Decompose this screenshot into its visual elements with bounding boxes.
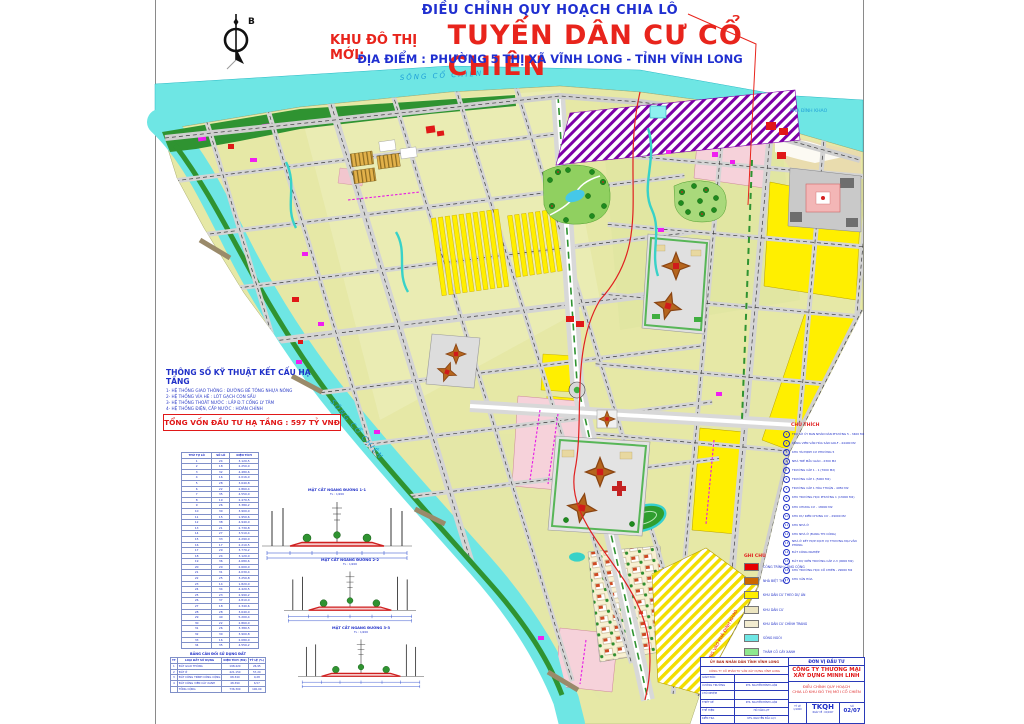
signature-row: THIẾT KẾ KTS. NGUYỄN ĐÌNH LUẬN bbox=[701, 700, 788, 708]
legend-item-number: 9 bbox=[783, 504, 790, 511]
legend-item-label: TRỤ SỞ ỦY BAN NHÂN DÂN PHƯỜNG 5 - 3400 M… bbox=[792, 433, 864, 436]
legend-item-number: 6 bbox=[783, 476, 790, 483]
sheet-cell: SỐ 02/07 bbox=[840, 703, 864, 723]
legend-item-label: KHU NHÀ Ở (ĐANG THI CÔNG) bbox=[792, 533, 836, 536]
legend-item-number: 11 bbox=[783, 522, 790, 529]
legend-item-label: TRƯỜNG CẤP 1 HÒA THUẬN - 4950 M2 bbox=[792, 487, 849, 490]
legend-item-label: KHU DÂN CƯ bbox=[763, 608, 784, 612]
legend-item: 3 KHU TÁI ĐỊNH CƯ PHƯỜNG 5 bbox=[783, 449, 865, 456]
legend-color-swatch bbox=[744, 577, 759, 585]
investor-name: CÔNG TY THƯƠNG MẠI XÂY DỰNG MINH LINH bbox=[789, 666, 864, 682]
legend-item: 8 KHU TRƯỜNG HỌC PHƯỜNG 1 (13000 M2) bbox=[783, 495, 865, 502]
road-cross-sections bbox=[0, 0, 1024, 724]
legend-color-swatch bbox=[744, 648, 759, 656]
legend-color-swatch bbox=[744, 634, 759, 642]
legend-item-label: KHU TRƯỜNG HỌC PHƯỜNG 1 (13000 M2) bbox=[792, 496, 855, 499]
legend-item: THẢM CỎ CÂY XANH bbox=[744, 648, 830, 656]
legend-item-label: KHU DỰ KIẾN CHUNG CƯ - 29000 M2 bbox=[792, 515, 846, 518]
legend-item: KHU DÂN CƯ bbox=[744, 606, 830, 614]
scale-cell: TỶ LỆ 1/1000 bbox=[789, 703, 807, 723]
legend-item: 7 TRƯỜNG CẤP 1 HÒA THUẬN - 4950 M2 bbox=[783, 486, 865, 493]
legend-item-label: SÔNG NGÒI bbox=[763, 636, 782, 640]
investor-label: ĐƠN VỊ ĐẦU TƯ bbox=[789, 658, 864, 666]
legend-item: 2 CÔNG VIÊN VĂN HÓA SÂN GOLF - 44400 M2 bbox=[783, 440, 865, 447]
legend-item-label: KHU CHUNG CƯ - 18000 M2 bbox=[792, 506, 833, 509]
title-block: ỦY BAN NHÂN DÂN TỈNH VĨNH LONG CÔNG TY C… bbox=[700, 657, 865, 724]
consultant-name: CÔNG TY CỔ PHẦN TƯ VẤN XÂY DỰNG VĨNH LON… bbox=[701, 667, 788, 675]
legend-item-label: THẢM CỎ CÂY XANH bbox=[763, 650, 795, 654]
legend-item: 4 NHÀ TRẺ MẪU GIÁO - 2300 M2 bbox=[783, 458, 865, 465]
plan-sheet: SÔNG CỔ CHIÊN SÔNG CỔ CHIÊN PHÀ ĐÌNH KHA… bbox=[0, 0, 1024, 724]
legend-item-number: 1 bbox=[783, 431, 790, 438]
legend-item-number: 12 bbox=[783, 531, 790, 538]
legend-item: 9 KHU CHUNG CƯ - 18000 M2 bbox=[783, 504, 865, 511]
legend-item-number: 13 bbox=[783, 540, 790, 547]
legend-item-number: 4 bbox=[783, 458, 790, 465]
legend-item-number: 7 bbox=[783, 486, 790, 493]
legend-item-label: TRƯỜNG CẤP 1 - 1 (7000 M2) bbox=[792, 469, 835, 472]
signature-row: CHỦ NHIỆM bbox=[701, 691, 788, 699]
legend-item: 1 TRỤ SỞ ỦY BAN NHÂN DÂN PHƯỜNG 5 - 3400… bbox=[783, 431, 865, 438]
title-block-right: ĐƠN VỊ ĐẦU TƯ CÔNG TY THƯƠNG MẠI XÂY DỰN… bbox=[789, 658, 864, 723]
legend-item: 11 KHU NHÀ Ở bbox=[783, 522, 865, 529]
legend-item: 6 TRƯỜNG CẤP 1 (5000 M2) bbox=[783, 476, 865, 483]
title-block-left: ỦY BAN NHÂN DÂN TỈNH VĨNH LONG CÔNG TY C… bbox=[701, 658, 789, 723]
legend-item-label: CÔNG VIÊN VĂN HÓA SÂN GOLF - 44400 M2 bbox=[792, 442, 856, 445]
drawing-name: ĐIỀU CHỈNH QUY HOẠCH CHIA LÔ KHU ĐÔ THỊ … bbox=[789, 682, 864, 703]
legend-item: 5 TRƯỜNG CẤP 1 - 1 (7000 M2) bbox=[783, 467, 865, 474]
legend-item-label: KHU NHÀ Ở bbox=[792, 524, 809, 527]
numbered-legend-title: CHÚ THÍCH bbox=[791, 423, 865, 428]
legend-item: CÔNG TRÌNH CÔNG CỘNG bbox=[744, 563, 830, 571]
legend-item: SÔNG NGÒI bbox=[744, 634, 830, 642]
legend-item-label: CÔNG TRÌNH CÔNG CỘNG bbox=[763, 565, 805, 569]
legend-item-number: 3 bbox=[783, 449, 790, 456]
legend-item-label: KHU DÂN CƯ THEO DỰ ÁN bbox=[763, 593, 805, 597]
signature-row: GIÁM ĐỐC bbox=[701, 675, 788, 683]
legend-item-label: NHÀ Ở KẾT HỢP DỊCH VỤ THƯƠNG MẠI VĂN PHÒ… bbox=[792, 540, 865, 547]
legend-item-label: TRƯỜNG CẤP 1 (5000 M2) bbox=[792, 478, 831, 481]
legend-item-number: 8 bbox=[783, 495, 790, 502]
code-cell: TKQH NGÀY VẼ : 02/2007 bbox=[807, 703, 840, 723]
legend-item: KHU DÂN CƯ THEO DỰ ÁN bbox=[744, 591, 830, 599]
legend-item-label: NHÀ TRẺ MẪU GIÁO - 2300 M2 bbox=[792, 460, 836, 463]
legend-item-number: 10 bbox=[783, 513, 790, 520]
legend-item-label: NHÀ BIỆT THỰ bbox=[763, 579, 786, 583]
signature-row: XƯỞNG TRƯỞNG KTS. NGUYỄN ĐÌNH LUẬN bbox=[701, 683, 788, 691]
legend-color-swatch bbox=[744, 563, 759, 571]
legend-item: KHU DÂN CƯ CHỈNH TRANG bbox=[744, 620, 830, 628]
legend-item-label: KHU DÂN CƯ CHỈNH TRANG bbox=[763, 622, 807, 626]
signature-row: KIỂM TRA KTS. NGUYỄN ĐẮC LỢI bbox=[701, 716, 788, 723]
color-legend-title: GHI CHÚ bbox=[744, 554, 830, 559]
title-block-bottom: TỶ LỆ 1/1000 TKQH NGÀY VẼ : 02/2007 SỐ 0… bbox=[789, 703, 864, 723]
agency-name: ỦY BAN NHÂN DÂN TỈNH VĨNH LONG bbox=[701, 658, 788, 667]
legend-item-label: KHU TÁI ĐỊNH CƯ PHƯỜNG 5 bbox=[792, 451, 834, 454]
legend-item: 13 NHÀ Ở KẾT HỢP DỊCH VỤ THƯƠNG MẠI VĂN … bbox=[783, 540, 865, 547]
legend-item: 10 KHU DỰ KIẾN CHUNG CƯ - 29000 M2 bbox=[783, 513, 865, 520]
legend-color-swatch bbox=[744, 591, 759, 599]
legend-item: NHÀ BIỆT THỰ bbox=[744, 577, 830, 585]
signature-row: THỂ HIỆN HỒ VĂN LỰT bbox=[701, 708, 788, 716]
legend-item-number: 5 bbox=[783, 467, 790, 474]
legend-color-swatch bbox=[744, 620, 759, 628]
legend-item-number: 2 bbox=[783, 440, 790, 447]
legend-color-swatch bbox=[744, 606, 759, 614]
legend-item: 12 KHU NHÀ Ở (ĐANG THI CÔNG) bbox=[783, 531, 865, 538]
